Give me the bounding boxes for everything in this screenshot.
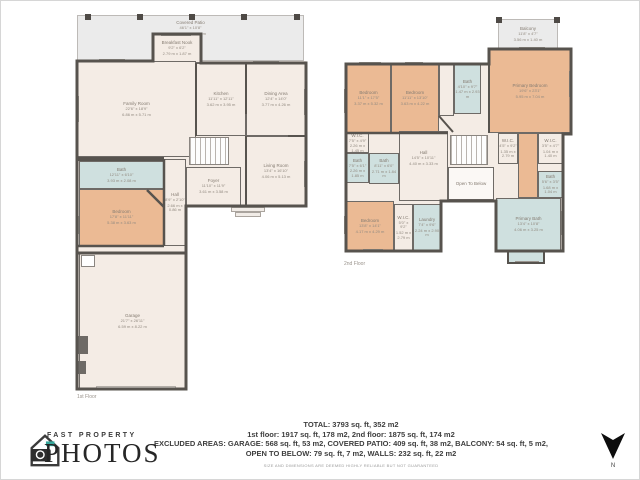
window [344, 89, 347, 113]
room-dims-m: 3.63 m x 4.22 m [401, 102, 430, 107]
room-dims-ft: 13'4" x 16'10" [262, 169, 291, 174]
summary-excluded-2: OPEN TO BELOW: 79 sq. ft, 7 m2, WALLS: 2… [141, 449, 561, 459]
window [99, 59, 125, 62]
room-dims-m: 4.06 m x 3.25 m [514, 228, 543, 233]
room-bedroom-2f-left: Bedroom 11'1" x 17'5" 3.37 m x 5.32 m [346, 64, 391, 133]
balcony-post [554, 17, 560, 23]
primary-corridor [518, 133, 538, 198]
window [304, 89, 307, 115]
summary-floors: 1st floor: 1917 sq. ft, 178 m2, 2nd floo… [141, 430, 561, 440]
room-primary-bedroom: Primary Bedroom 19'6" x 23'1" 5.95 m x 7… [489, 49, 571, 133]
north-arrow-icon [600, 431, 626, 461]
closet-2f [439, 64, 454, 116]
room-bedroom-2f-bottom: Bedroom 13'8" x 14'1" 4.17 m x 4.29 m [346, 201, 394, 251]
floor1-caption: 1st Floor [77, 394, 96, 400]
room-bedroom-2f-mid: Bedroom 11'11" x 13'10" 3.63 m x 4.22 m [391, 64, 439, 133]
room-dims-ft: 11'8" x 4'7" [514, 32, 543, 37]
summary-total: TOTAL: 3793 sq. ft, 352 m2 [141, 420, 561, 430]
window [76, 216, 79, 234]
room-dims-m: 3.61 m x 3.58 m [199, 190, 228, 195]
room-foyer: Foyer 11'10" x 11'9" 3.61 m x 3.58 m [186, 167, 241, 206]
room-bath-1f: Bath 12'11" x 6'10" 3.93 m x 2.08 m [79, 161, 164, 189]
room-kitchen: Kitchen 11'11" x 12'11" 3.62 m x 3.95 m [196, 63, 246, 136]
window [161, 33, 191, 36]
room-dims-m: 6.86 m x 5.71 m [122, 113, 151, 118]
room-dims-ft: 13'8" x 14'1" [356, 224, 385, 229]
room-bath-2f-right: Bath 5'6" x 3'5" 1.68 m x 1.04 m [538, 171, 563, 198]
room-bath-2f-left2: Bath 8'11" x 6'0" 2.71 m x 1.84 m [369, 153, 399, 184]
open-to-below: Open To Below [448, 167, 494, 200]
room-dims-m: 4.40 m x 3.33 m [409, 162, 438, 167]
floorplan-page: Covered Patio 46'1" x 10'8" 14.04 m x 3.… [0, 0, 640, 480]
window [76, 96, 79, 122]
garage-equipment [78, 361, 86, 374]
floor2-notch [564, 135, 572, 252]
room-family-room: Family Room 22'6" x 18'9" 6.86 m x 5.71 … [77, 61, 196, 157]
summary-excluded-1: EXCLUDED AREAS: GARAGE: 568 sq. ft, 53 m… [141, 439, 561, 449]
window [515, 261, 539, 264]
room-hall-1f: Hall 8'9" x 2'10" 2.66 m x 0.86 m [164, 159, 186, 246]
stairs-2f [450, 135, 488, 165]
room-balcony: Balcony 11'8" x 4'7" 3.56 m x 1.40 m [498, 19, 558, 49]
room-dims-m: 2.66 m x 0.86 m [165, 204, 185, 213]
room-dims-ft: 22'6" x 18'9" [122, 107, 151, 112]
patio-post [241, 14, 247, 20]
room-dims-ft: 19'6" x 23'1" [512, 89, 547, 94]
window [359, 62, 381, 65]
window [569, 71, 572, 97]
room-hall-2f: Hall 14'5" x 10'11" 4.40 m x 3.33 m [399, 131, 448, 201]
room-dims-m: 3.93 m x 2.08 m [107, 179, 136, 184]
room-dims-m: 3.77 m x 4.26 m [262, 103, 291, 108]
floor2-caption: 2nd Floor [344, 261, 365, 267]
patio-post [294, 14, 300, 20]
room-bath-2f-top: Bath 4'10" x 9'7" 1.47 m x 2.93 m [454, 64, 481, 114]
room-primary-bath: Primary Bath 13'4" x 10'8" 4.06 m x 3.25… [496, 198, 561, 251]
room-dims-m: 4.06 m x 5.13 m [262, 175, 291, 180]
room-dims-m: 1.04 m x 1.40 m [539, 150, 562, 159]
patio-post [189, 14, 195, 20]
room-dims-ft: 21'7" x 26'11" [118, 319, 147, 324]
window [405, 62, 423, 65]
room-dims-m: 3.56 m x 1.40 m [514, 38, 543, 43]
entry-step [235, 212, 261, 217]
garage-fixture [81, 255, 95, 267]
window [253, 61, 279, 64]
window [519, 47, 545, 50]
room-dims-m: 1.35 m x 2.79 m [499, 150, 517, 159]
room-dims-m: 5.38 m x 3.63 m [107, 221, 136, 226]
room-bath-2f-left1: Bath 7'5" x 6'1" 2.26 m x 1.85 m [346, 153, 369, 183]
disclaimer-text: SIZE AND DIMENSIONS ARE DEEMED HIGHLY RE… [141, 461, 561, 471]
patio-post [85, 14, 91, 20]
room-label: Bath [347, 158, 368, 163]
room-living-room: Living Room 13'4" x 16'10" 4.06 m x 5.13… [246, 136, 306, 206]
balcony-post [496, 17, 502, 23]
room-dims-m: 3.62 m x 3.95 m [207, 103, 236, 108]
window [304, 161, 307, 187]
room-breakfast-nook: Breakfast Nook 9'2" x 6'2" 2.79 m x 1.87… [153, 34, 201, 63]
north-compass: N [599, 431, 627, 475]
room-label: Bath [455, 79, 480, 84]
room-dims-m: 2.26 m x 1.85 m [347, 169, 368, 178]
room-dims-m: 3.37 m x 5.32 m [354, 102, 383, 107]
room-label: W.I.C. [347, 133, 368, 138]
room-dims-m: 2.71 m x 1.84 m [370, 170, 398, 179]
window [561, 211, 564, 235]
room-dims-m: 4.17 m x 4.29 m [356, 230, 385, 235]
room-dims-m: 2.24 m x 2.90 m [414, 229, 440, 238]
room-wic-right: W.I.C. 3'5" x 4'7" 1.04 m x 1.40 m [538, 133, 563, 164]
area-summary: TOTAL: 3793 sq. ft, 352 m2 1st floor: 19… [141, 420, 561, 471]
room-bedroom-1f: Bedroom 17'8" x 11'11" 5.38 m x 3.63 m [79, 189, 164, 246]
room-dims-ft: 12'11" x 6'10" [107, 173, 136, 178]
room-wic-bottom: W.I.C. 5'0" x 9'2" 1.52 m x 2.79 m [394, 204, 413, 251]
room-dims-m: 5.95 m x 7.04 m [512, 95, 547, 100]
garage-equipment [78, 336, 88, 354]
room-wic-mid: W.I.C. 4'5" x 9'2" 1.35 m x 2.79 m [498, 133, 518, 164]
room-dining-area: Dining Area 12'4" x 14'0" 3.77 m x 4.26 … [246, 63, 306, 136]
room-laundry: Laundry 7'4" x 9'6" 2.24 m x 2.90 m [413, 204, 441, 251]
stairs-1f [189, 137, 229, 165]
patio-post [137, 14, 143, 20]
window [344, 216, 347, 234]
company-logo: FAST PROPERTY PHOTOS [26, 429, 156, 471]
room-dims-m: 6.59 m x 8.22 m [118, 325, 147, 330]
room-dims-m: 1.68 m x 1.04 m [539, 186, 562, 195]
room-garage: Garage 21'7" x 26'11" 6.59 m x 8.22 m [79, 253, 186, 389]
room-dims-m: 2.79 m x 1.87 m [162, 52, 193, 57]
room-dims-m: 1.47 m x 2.93 m [455, 90, 480, 99]
room-dims-ft: 5'0" x 9'2" [395, 221, 412, 230]
room-wic-left: W.I.C. 7'5" x 4'9" 2.26 m x 1.45 m [346, 133, 369, 153]
room-dims-m: 1.52 m x 2.79 m [395, 231, 412, 240]
logo-text-bottom: PHOTOS [44, 438, 161, 469]
room-label: Open To Below [456, 181, 486, 186]
garage-door [96, 386, 176, 390]
compass-n-label: N [599, 463, 627, 469]
floor2-notch [441, 202, 496, 252]
window [363, 249, 383, 252]
